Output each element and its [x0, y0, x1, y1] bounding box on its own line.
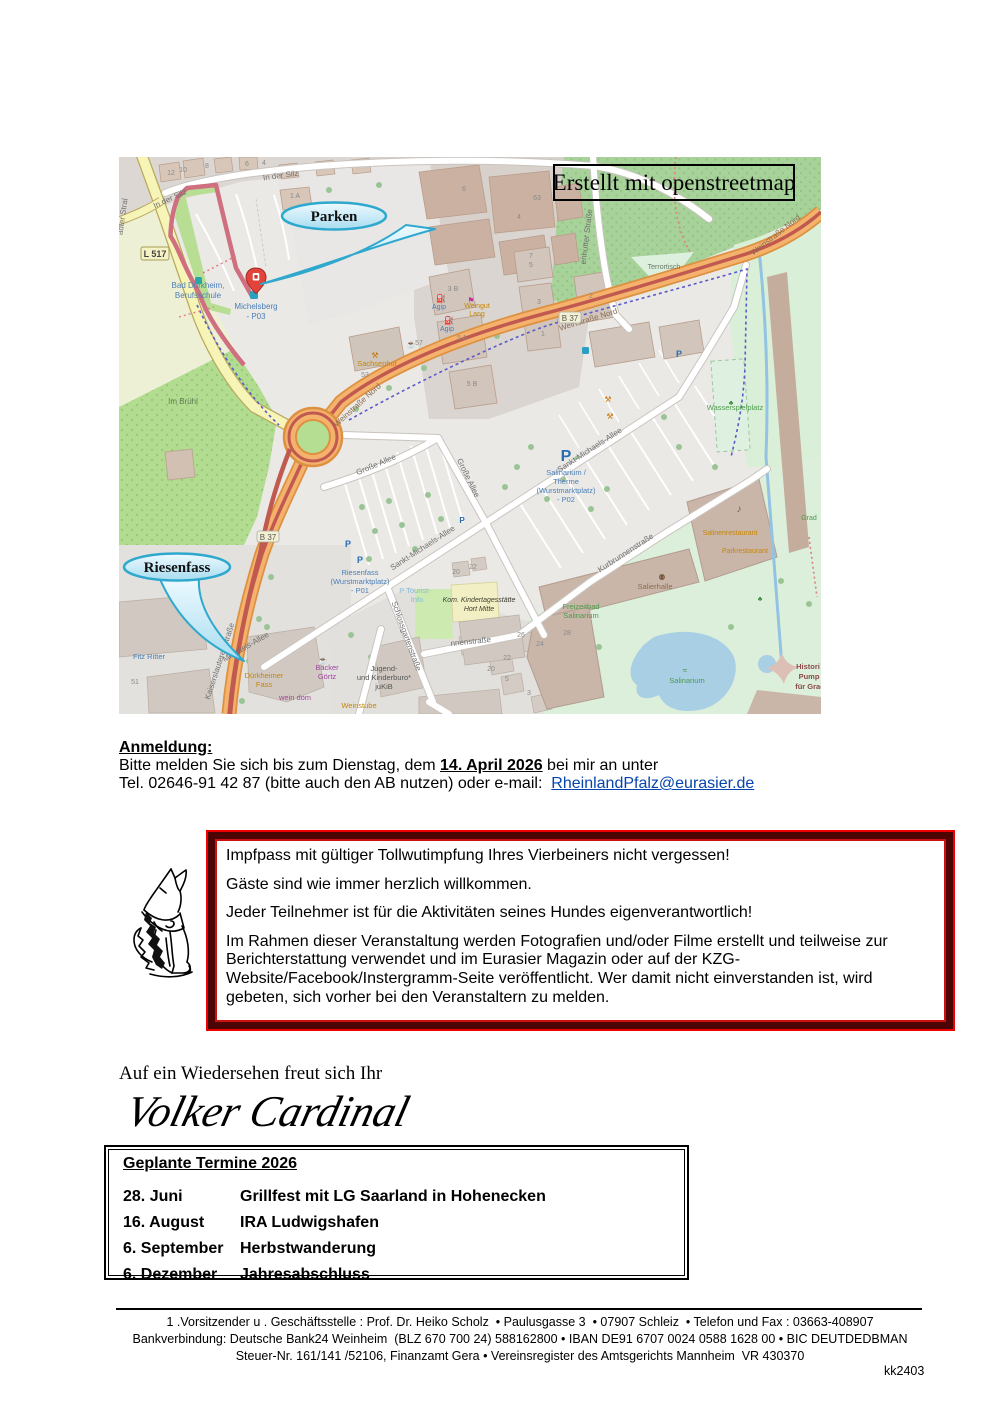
svg-text:51: 51	[131, 679, 139, 686]
svg-text:5 A: 5 A	[457, 335, 467, 342]
svg-text:Info: Info	[411, 595, 424, 604]
svg-text:P: P	[459, 516, 465, 525]
svg-text:Weinstube: Weinstube	[341, 701, 376, 710]
svg-text:20: 20	[452, 569, 460, 576]
svg-text:P: P	[676, 349, 682, 359]
svg-text:B 37: B 37	[260, 533, 277, 542]
svg-text:Agip: Agip	[432, 304, 446, 311]
svg-text:⛽: ⛽	[444, 315, 454, 325]
svg-text:Therme: Therme	[553, 477, 579, 486]
svg-text:Parken: Parken	[311, 209, 358, 225]
svg-text:- P01: - P01	[351, 586, 369, 595]
svg-text:L 517: L 517	[144, 249, 167, 259]
svg-text:⛽: ⛽	[436, 293, 446, 303]
svg-text:28: 28	[563, 630, 571, 637]
svg-text:⚒: ⚒	[604, 395, 611, 404]
svg-text:Sachsenhut: Sachsenhut	[357, 359, 398, 368]
svg-text:☕: ☕	[406, 339, 416, 349]
svg-text:≈: ≈	[683, 666, 688, 675]
svg-text:6: 6	[462, 186, 466, 193]
svg-text:3 B: 3 B	[448, 286, 459, 293]
svg-text:⚉: ⚉	[658, 573, 665, 582]
svg-text:(Wurstmarktplatz): (Wurstmarktplatz)	[330, 577, 390, 586]
svg-text:24: 24	[536, 641, 544, 648]
svg-text:Lang: Lang	[469, 311, 485, 318]
svg-text:1: 1	[541, 331, 545, 338]
svg-text:⚑: ⚑	[467, 296, 474, 305]
svg-text:Salinenrestaurant: Salinenrestaurant	[703, 530, 758, 537]
svg-text:Dürkheimer: Dürkheimer	[245, 671, 284, 680]
svg-text:P: P	[357, 555, 363, 565]
svg-text:⚒: ⚒	[606, 412, 613, 421]
svg-text:Riesenfass: Riesenfass	[341, 568, 378, 577]
svg-text:3: 3	[537, 299, 541, 306]
svg-text:Parkrestaurant: Parkrestaurant	[722, 548, 768, 555]
svg-text:und Kinderburo*: und Kinderburo*	[357, 673, 411, 682]
svg-text:P: P	[561, 448, 572, 465]
svg-text:Fass: Fass	[256, 680, 273, 689]
svg-text:Histori: Histori	[796, 662, 820, 671]
svg-text:12: 12	[167, 170, 175, 177]
svg-text:Grad: Grad	[801, 515, 817, 522]
svg-text:Im Brühl: Im Brühl	[168, 397, 198, 406]
svg-text:Fitz Ritter: Fitz Ritter	[133, 652, 166, 661]
svg-text:♣: ♣	[758, 596, 763, 603]
svg-text:Agip: Agip	[440, 326, 454, 333]
svg-text:Jugend-: Jugend-	[370, 664, 398, 673]
svg-text:Freizeitbad: Freizeitbad	[562, 602, 599, 611]
svg-text:☕: ☕	[318, 655, 328, 665]
svg-text:10: 10	[179, 167, 187, 174]
svg-text:Hort Mitte: Hort Mitte	[464, 606, 494, 613]
svg-text:5: 5	[529, 262, 533, 269]
svg-text:Salinarium /: Salinarium /	[546, 468, 587, 477]
svg-text:1 A: 1 A	[290, 193, 300, 200]
svg-text:63: 63	[533, 195, 541, 202]
svg-text:Kom. Kindertagesstätte: Kom. Kindertagesstätte	[443, 597, 516, 604]
svg-text:Terrortisch: Terrortisch	[648, 264, 681, 271]
svg-text:juKiB: juKiB	[374, 682, 393, 691]
svg-text:57: 57	[415, 340, 423, 347]
svg-text:22: 22	[469, 564, 477, 571]
svg-text:5: 5	[505, 676, 509, 683]
svg-text:22: 22	[503, 655, 511, 662]
svg-text:53: 53	[361, 372, 369, 379]
svg-text:Görtz: Görtz	[318, 672, 337, 681]
svg-text:26: 26	[517, 632, 525, 639]
svg-text:♪: ♪	[737, 504, 742, 515]
svg-text:♣: ♣	[729, 400, 734, 407]
svg-text:6: 6	[245, 161, 249, 168]
svg-text:wein dom: wein dom	[278, 693, 311, 702]
svg-text:für Grad: für Grad	[795, 682, 821, 691]
svg-text:Salinarium: Salinarium	[563, 611, 598, 620]
svg-text:8: 8	[205, 163, 209, 170]
svg-text:- P03: - P03	[246, 312, 266, 321]
svg-text:20: 20	[487, 666, 495, 673]
svg-text:2: 2	[589, 293, 593, 300]
svg-text:P Tourist-: P Tourist-	[399, 586, 431, 595]
svg-text:5 B: 5 B	[467, 381, 478, 388]
svg-text:4: 4	[262, 160, 266, 167]
svg-text:Berufsschule: Berufsschule	[175, 291, 222, 300]
svg-text:4: 4	[517, 214, 521, 221]
svg-text:B 37: B 37	[562, 314, 579, 323]
svg-text:Erstellt mit openstreetmap: Erstellt mit openstreetmap	[553, 170, 796, 195]
svg-text:Salinarium: Salinarium	[669, 676, 704, 685]
svg-text:Wasserspielplatz: Wasserspielplatz	[707, 403, 764, 412]
svg-text:7: 7	[529, 253, 533, 260]
svg-text:P: P	[345, 539, 351, 549]
svg-text:Salierhalle: Salierhalle	[637, 582, 672, 591]
svg-text:(Wurstmarktplatz): (Wurstmarktplatz)	[536, 486, 596, 495]
svg-text:Riesenfass: Riesenfass	[144, 560, 211, 576]
svg-text:Michelsberg: Michelsberg	[234, 302, 277, 311]
svg-text:⚒: ⚒	[371, 351, 378, 360]
svg-text:- P02: - P02	[557, 495, 575, 504]
svg-text:Pump: Pump	[799, 672, 820, 681]
svg-text:3: 3	[527, 690, 531, 697]
